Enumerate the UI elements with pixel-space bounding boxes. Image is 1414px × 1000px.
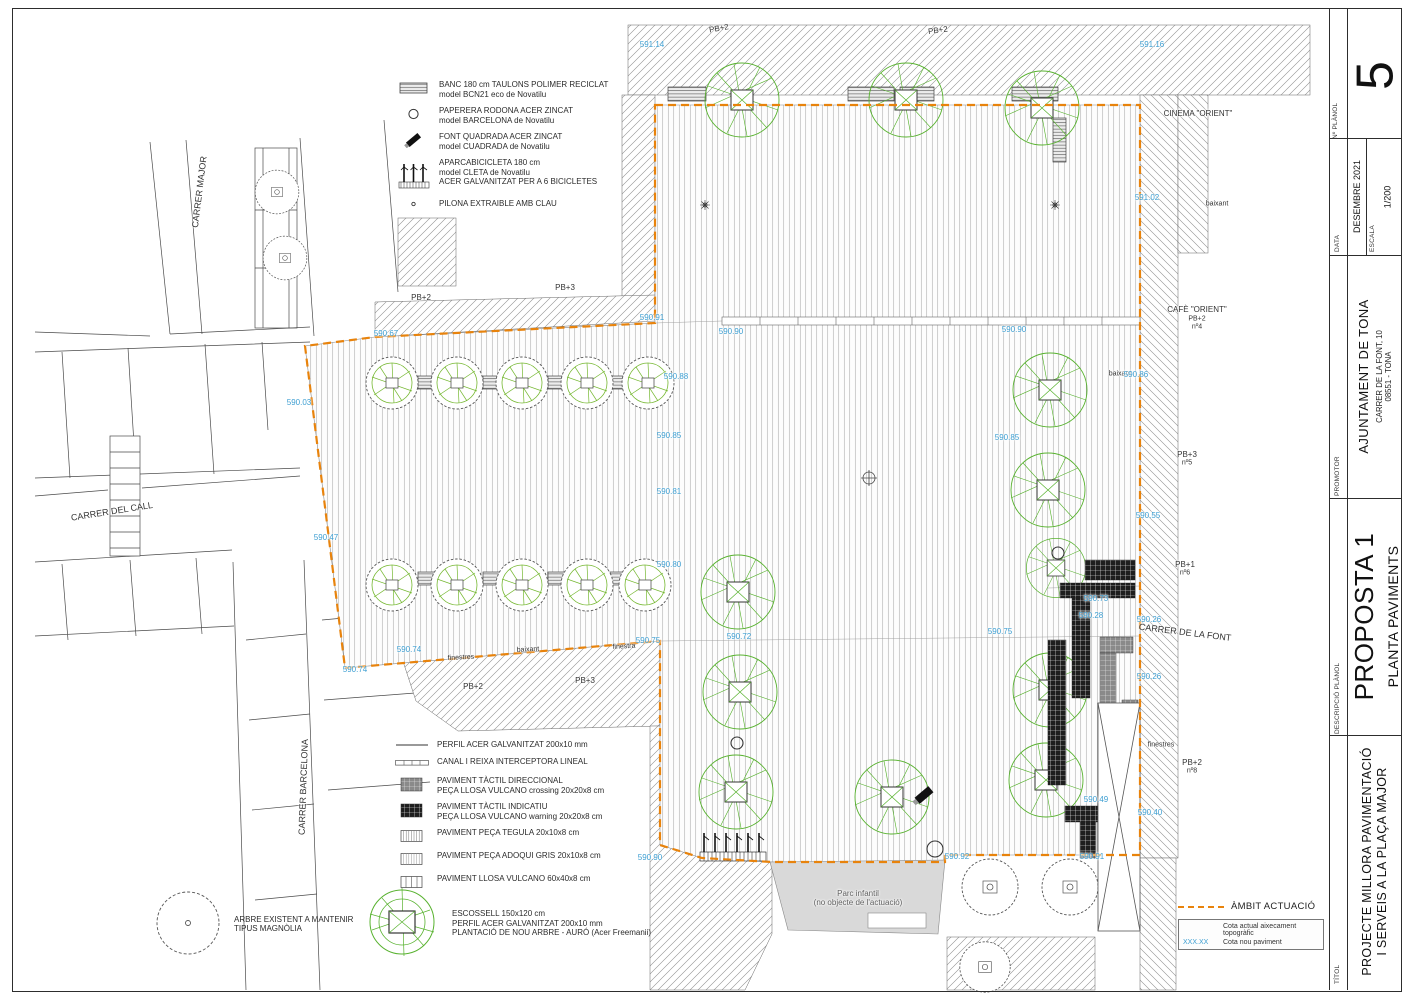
project-title-block: PROJECTE MILLORA PAVIMENTACIÓ I SERVEIS … xyxy=(1347,735,1402,988)
promoter-address1: CARRER DE LA FONT, 10 xyxy=(1375,330,1384,423)
plan-name: PLANTA PAVIMENTS xyxy=(1385,546,1401,688)
project-title-line1: PROJECTE MILLORA PAVIMENTACIÓ xyxy=(1360,747,1375,975)
sheet-frame xyxy=(12,8,1402,992)
project-title-line2: I SERVEIS A LA PLAÇA MAJOR xyxy=(1375,767,1390,955)
data-escala-divider xyxy=(1366,138,1367,255)
promoter-name: AJUNTAMENT DE TONA xyxy=(1356,299,1371,453)
date-label: DATA xyxy=(1334,222,1341,252)
plan-description-block: PROPOSTA 1 PLANTA PAVIMENTS xyxy=(1347,498,1402,735)
sheet-scale: 1/200 xyxy=(1374,138,1400,255)
title-label: TÍTOL xyxy=(1334,946,1341,984)
sheet-date: DESEMBRE 2021 xyxy=(1347,138,1366,255)
description-label: DESCRIPCIÓ PLÀNOL xyxy=(1334,646,1341,734)
titleblock-divider xyxy=(1329,8,1330,990)
promoter-block: AJUNTAMENT DE TONA CARRER DE LA FONT, 10… xyxy=(1347,255,1402,498)
promoter-label: PROMOTOR xyxy=(1334,450,1341,496)
drawing-sheet: CARRER MAJORCARRER DEL CALLCARRER BARCEL… xyxy=(0,0,1414,1000)
promoter-address2: 08551 - TONA xyxy=(1384,352,1393,402)
sheet-number: 5 xyxy=(1347,12,1402,138)
sheet-number-label: Nº PLÀNOL xyxy=(1332,95,1339,139)
proposal-title: PROPOSTA 1 xyxy=(1349,533,1380,701)
